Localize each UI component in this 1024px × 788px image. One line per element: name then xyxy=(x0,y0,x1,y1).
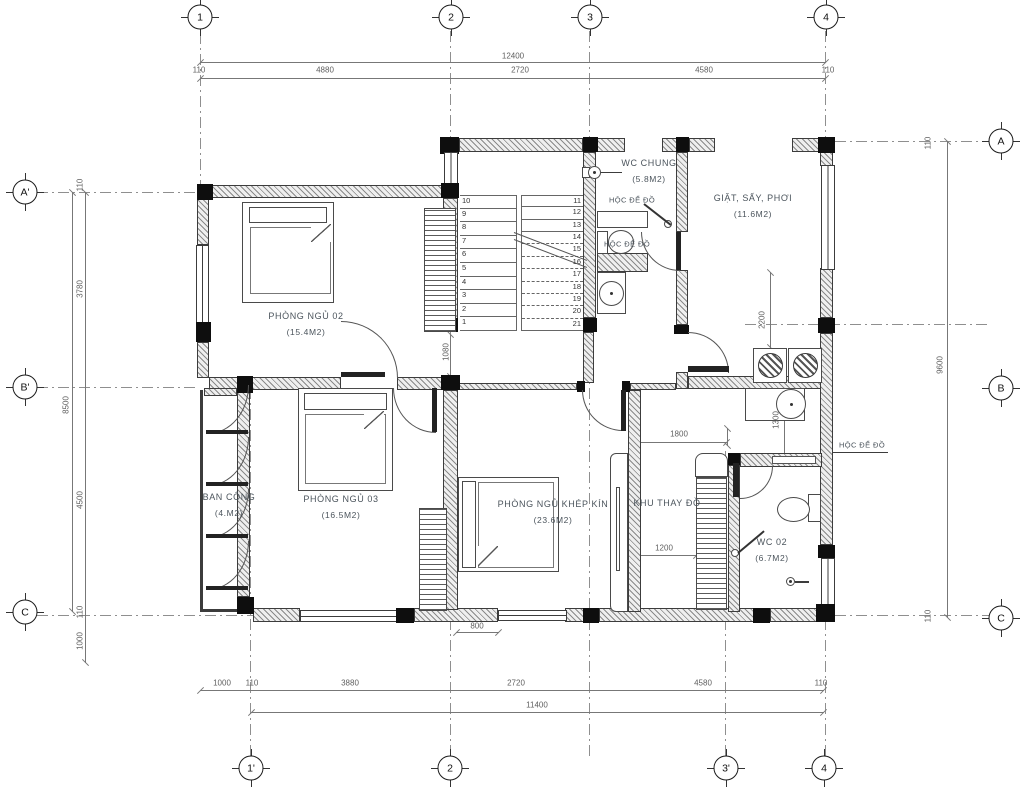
balcony-door-sill xyxy=(206,586,248,590)
wall-segment xyxy=(770,608,818,622)
room-label-wc-chung: WC CHUNG xyxy=(621,158,676,168)
door-leaf-laundry xyxy=(688,366,729,372)
label-leader xyxy=(833,452,888,453)
wall-segment xyxy=(459,138,583,152)
storage-shelf xyxy=(597,211,648,228)
door-leaf-wc02 xyxy=(733,463,739,497)
dimension-label: 110 xyxy=(815,679,828,688)
dimension-label: 11400 xyxy=(526,701,548,710)
room-area-master-bedroom: (23.6M2) xyxy=(534,515,573,525)
grid-line-B xyxy=(745,324,989,325)
dimension-label: 800 xyxy=(470,622,483,631)
grid-bubble-3': 3' xyxy=(714,756,739,781)
column xyxy=(753,608,770,623)
dim-line-2200 xyxy=(770,272,771,348)
door-leaf-wc-lobby xyxy=(676,232,681,270)
dim-line-bottom-total xyxy=(251,712,824,713)
wall-segment xyxy=(689,138,715,152)
dimension-label: 8500 xyxy=(62,396,71,414)
column xyxy=(237,597,254,614)
toilet-bowl xyxy=(777,497,810,522)
column xyxy=(674,325,689,334)
storage-label: HỘC ĐỂ ĐỒ xyxy=(609,196,655,205)
balcony-door-sill xyxy=(206,482,248,486)
grid-bubble-B': B' xyxy=(13,375,38,400)
wall-segment xyxy=(197,198,209,245)
dimension-label: 110 xyxy=(924,137,933,150)
dim-line-top-chain xyxy=(200,78,826,79)
dimension-label: 12400 xyxy=(502,52,524,61)
door-leaf-master xyxy=(621,390,626,431)
stair-step: 17 xyxy=(522,269,583,281)
wall-segment xyxy=(676,152,688,232)
room-area-wc02: (6.7M2) xyxy=(755,553,789,563)
dim-line-bottom-chain xyxy=(200,690,824,691)
balcony-door-sill xyxy=(206,534,248,538)
wall-segment xyxy=(565,608,585,622)
window xyxy=(498,610,567,621)
room-label-bedroom3: PHÒNG NGỦ 03 xyxy=(303,494,378,504)
window xyxy=(821,558,835,606)
grid-bubble-4: 4 xyxy=(812,756,837,781)
label-leader xyxy=(598,172,622,173)
wall-segment xyxy=(458,383,577,390)
wardrobe-top xyxy=(695,453,728,477)
room-label-balcony: BAN CÔNG xyxy=(203,492,256,502)
grid-line-Bp xyxy=(37,387,197,388)
bed-headboard xyxy=(249,207,327,223)
dimension-label: 1080 xyxy=(442,343,451,361)
grid-bubble-3: 3 xyxy=(578,5,603,30)
room-label-dressing: KHU THAY ĐỒ xyxy=(633,498,700,508)
faucet xyxy=(786,577,795,586)
washer-drum xyxy=(758,353,783,378)
bed-headboard xyxy=(304,393,387,410)
wardrobe xyxy=(696,477,727,610)
wall-segment xyxy=(253,608,300,622)
grid-bubble-2: 2 xyxy=(438,756,463,781)
dimension-label: 2200 xyxy=(758,311,767,329)
window xyxy=(821,165,835,270)
room-area-bedroom3: (16.5M2) xyxy=(322,510,361,520)
stair-step: 18 xyxy=(522,282,583,294)
blanket-fold xyxy=(364,411,384,429)
wall-segment xyxy=(792,138,820,152)
column xyxy=(818,318,835,333)
dimension-label: 9600 xyxy=(936,356,945,374)
dimension-label: 4500 xyxy=(76,491,85,509)
room-area-laundry: (11.6M2) xyxy=(734,209,772,219)
dim-line-left-total xyxy=(72,192,73,612)
basin xyxy=(599,281,624,306)
stair-step: 10 xyxy=(460,195,516,209)
basin xyxy=(776,389,806,419)
grid-bubble-C: C xyxy=(13,600,38,625)
stair-step: 2 xyxy=(460,304,516,318)
grid-bubble-A: A xyxy=(989,129,1014,154)
stair-step: 20 xyxy=(522,306,583,318)
column xyxy=(441,183,459,198)
room-area-bedroom2: (15.4M2) xyxy=(287,327,326,337)
window xyxy=(300,610,400,622)
stair-step: 3 xyxy=(460,290,516,304)
dimension-label: 1800 xyxy=(670,430,688,439)
room-label-wc02: WC 02 xyxy=(757,537,788,547)
storage-label: HỘC ĐỂ ĐỒ xyxy=(839,441,885,450)
wall-segment xyxy=(630,383,676,390)
dimension-label: 4880 xyxy=(316,66,334,75)
sink-bowl xyxy=(588,166,601,179)
column xyxy=(197,184,213,200)
stair-step: 9 xyxy=(460,209,516,223)
dimension-label: 110 xyxy=(924,610,933,623)
dimension-label: 3780 xyxy=(76,280,85,298)
closet-mirror xyxy=(616,487,620,571)
dim-line-800 xyxy=(456,632,499,633)
bed-headboard xyxy=(462,481,476,568)
stair-step: 19 xyxy=(522,294,583,306)
grid-bubble-C: C xyxy=(989,606,1014,631)
wall-segment xyxy=(597,138,625,152)
wall-segment xyxy=(676,372,688,389)
grid-bubble-A': A' xyxy=(13,180,38,205)
blanket-fold xyxy=(478,546,498,566)
storage-niche-band xyxy=(597,253,648,272)
column xyxy=(441,375,460,390)
stair-step: 4 xyxy=(460,277,516,291)
storage-label: HỘC ĐỂ ĐỒ xyxy=(604,240,650,249)
stair-step: 7 xyxy=(460,236,516,250)
dimension-label: 4580 xyxy=(695,66,713,75)
dimension-label: 110 xyxy=(76,179,85,192)
stair-step: 5 xyxy=(460,263,516,277)
stair-flight-left: 10987654321 xyxy=(460,195,516,331)
door-arc-wc02 xyxy=(740,466,773,499)
balcony-door-sill xyxy=(206,430,248,434)
stair-rail xyxy=(516,195,522,331)
column xyxy=(583,137,598,152)
blanket-fold xyxy=(311,224,331,242)
dimension-label: 2720 xyxy=(511,66,529,75)
dim-line-left-chain xyxy=(85,192,86,663)
dimension-label: 110 xyxy=(193,66,206,75)
grid-bubble-B: B xyxy=(989,376,1014,401)
column xyxy=(818,545,835,558)
dim-line-top-total xyxy=(200,62,826,63)
column xyxy=(583,608,599,623)
door-arc-bedroom3 xyxy=(393,388,436,433)
dimension-label: 1000 xyxy=(213,679,231,688)
grid-line-A xyxy=(835,141,989,142)
dimension-label: 4580 xyxy=(694,679,712,688)
room-label-bedroom2: PHÒNG NGỦ 02 xyxy=(268,311,343,321)
door-arc-bedroom2 xyxy=(341,321,398,378)
column xyxy=(196,322,211,342)
column xyxy=(396,608,414,623)
window xyxy=(196,245,209,324)
wardrobe xyxy=(424,208,456,332)
dimension-label: 1000 xyxy=(76,632,85,650)
stair-step: 21 xyxy=(522,319,583,331)
grid-line-1p xyxy=(250,380,251,756)
room-label-master-bedroom: PHÒNG NGỦ KHÉP KÍN xyxy=(498,499,609,509)
stair-step: 1 xyxy=(460,317,516,331)
wall-segment xyxy=(820,152,833,166)
wall-segment xyxy=(676,270,688,325)
door-leaf-bedroom2 xyxy=(341,372,385,377)
dimension-label: 110 xyxy=(246,679,259,688)
room-area-balcony: (4.M2) xyxy=(215,508,243,518)
wall-segment xyxy=(583,332,594,383)
stair-step: 8 xyxy=(460,222,516,236)
washer-drum xyxy=(793,353,818,378)
dimension-label: 110 xyxy=(822,66,835,75)
faucet-stem xyxy=(795,581,809,583)
wall-segment xyxy=(820,268,833,318)
dimension-label: 2720 xyxy=(507,679,525,688)
dimension-label: 110 xyxy=(76,606,85,619)
window xyxy=(444,152,458,187)
dim-line-right-total xyxy=(947,141,948,618)
grid-bubble-1: 1 xyxy=(188,5,213,30)
door-leaf-bedroom3 xyxy=(432,388,437,432)
column xyxy=(818,137,835,153)
dimension-label: 3880 xyxy=(341,679,359,688)
column xyxy=(583,318,597,332)
dim-line-1200 xyxy=(633,555,697,556)
room-area-wc-chung: (5.8M2) xyxy=(632,174,666,184)
grid-bubble-1': 1' xyxy=(239,756,264,781)
floor-plan-page: { "plan_title": "Second floor plan", "ro… xyxy=(0,0,1024,788)
dim-ext-1800-r xyxy=(727,428,728,446)
grid-bubble-4: 4 xyxy=(814,5,839,30)
grid-line-Ap xyxy=(37,192,197,193)
dimension-label: 1300 xyxy=(772,411,781,429)
grid-bubble-2: 2 xyxy=(439,5,464,30)
room-label-laundry: GIẶT, SẤY, PHƠI xyxy=(714,193,793,203)
stair-step: 12 xyxy=(522,207,583,219)
column xyxy=(816,604,835,622)
storage-niche xyxy=(772,456,816,464)
column xyxy=(676,137,689,152)
stair-step: 6 xyxy=(460,249,516,263)
balcony-outer-wall xyxy=(200,609,237,612)
wall-segment xyxy=(662,138,677,152)
wall-segment xyxy=(212,185,443,198)
stair-step: 11 xyxy=(522,195,583,207)
wardrobe xyxy=(419,508,447,611)
grid-line-1 xyxy=(200,29,201,191)
wall-segment xyxy=(197,342,209,378)
stair-step: 13 xyxy=(522,220,583,232)
dim-line-1800 xyxy=(632,442,727,443)
dimension-label: 1200 xyxy=(655,544,673,553)
